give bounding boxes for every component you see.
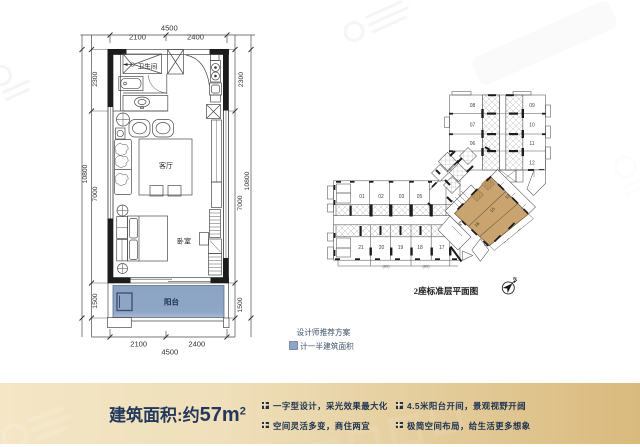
- svg-text:10800: 10800: [82, 164, 89, 183]
- svg-text:1500: 1500: [92, 293, 99, 308]
- svg-text:计一半建筑面积: 计一半建筑面积: [300, 341, 354, 351]
- svg-text:(80): (80): [382, 264, 390, 269]
- svg-text:4500: 4500: [161, 347, 178, 356]
- svg-text:2400: 2400: [187, 33, 204, 42]
- svg-text:2座标准层平面图: 2座标准层平面图: [414, 285, 479, 296]
- svg-text:05: 05: [417, 194, 423, 200]
- svg-text:2300: 2300: [92, 71, 99, 86]
- svg-text:19: 19: [398, 245, 404, 251]
- svg-text:06: 06: [470, 141, 476, 147]
- svg-text:7000: 7000: [92, 186, 99, 201]
- svg-text:1500: 1500: [237, 297, 244, 312]
- svg-text:2100: 2100: [129, 33, 146, 42]
- svg-text:卫生间: 卫生间: [138, 62, 158, 71]
- svg-text:21: 21: [358, 245, 364, 251]
- svg-text:02: 02: [378, 194, 384, 200]
- svg-text:12: 12: [529, 161, 535, 167]
- svg-text:18: 18: [417, 245, 423, 251]
- svg-text:03: 03: [399, 194, 405, 200]
- svg-text:2400: 2400: [188, 339, 205, 348]
- svg-text:2300: 2300: [238, 72, 245, 87]
- svg-text:10: 10: [529, 123, 535, 129]
- svg-text:设计师推荐方案: 设计师推荐方案: [297, 327, 351, 337]
- svg-text:(80): (80): [422, 264, 430, 269]
- svg-text:08: 08: [470, 103, 476, 109]
- svg-text:09: 09: [529, 103, 535, 109]
- svg-text:17: 17: [439, 245, 445, 251]
- svg-text:客厅: 客厅: [159, 161, 173, 170]
- svg-text:7000: 7000: [237, 195, 244, 210]
- svg-text:阳台: 阳台: [164, 297, 179, 307]
- svg-text:11: 11: [529, 141, 534, 147]
- svg-text:4500: 4500: [161, 24, 178, 33]
- svg-text:卧室: 卧室: [177, 237, 191, 246]
- svg-text:10800: 10800: [244, 171, 251, 190]
- svg-text:2100: 2100: [130, 339, 147, 348]
- svg-text:20: 20: [379, 245, 385, 251]
- svg-text:01: 01: [359, 194, 365, 200]
- svg-text:07: 07: [470, 123, 476, 129]
